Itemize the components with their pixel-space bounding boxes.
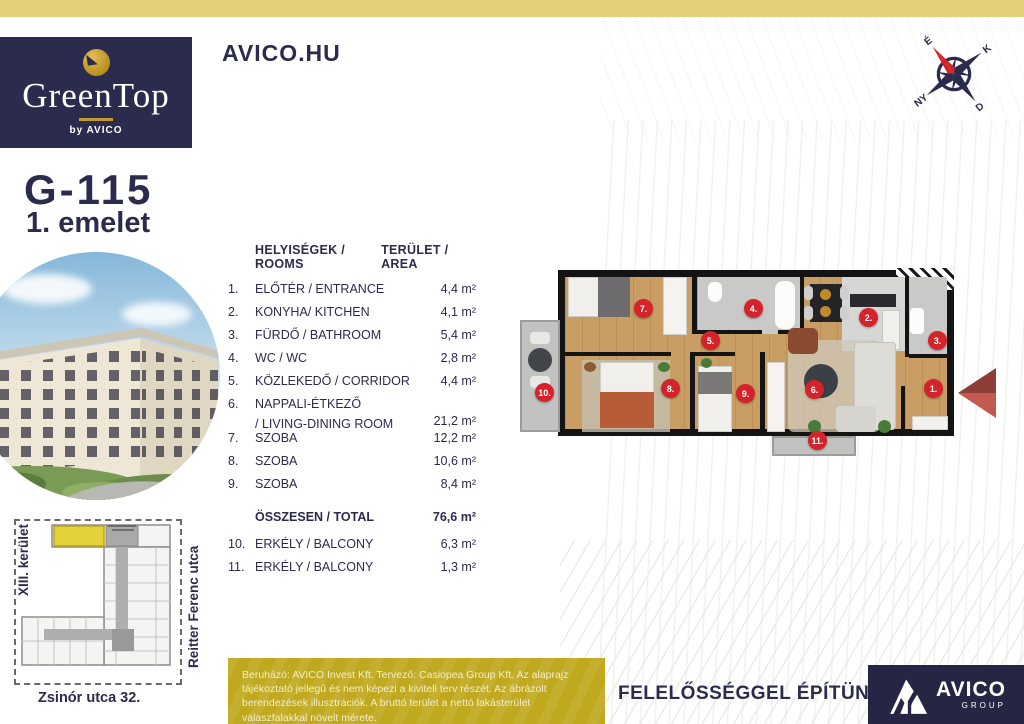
room-row: 5.KÖZLEKEDŐ / CORRIDOR4,4 m² bbox=[228, 374, 476, 397]
room-number: 9. bbox=[228, 477, 255, 491]
room-row: 7.SZOBA12,2 m² bbox=[228, 431, 476, 454]
district-label: XIII. kerület bbox=[16, 524, 31, 596]
sink bbox=[910, 308, 924, 334]
room-area: 4,4 m² bbox=[441, 282, 476, 296]
room-area: 12,2 m² bbox=[434, 431, 476, 445]
room-row: 4.WC / WC2,8 m² bbox=[228, 351, 476, 374]
chair bbox=[840, 286, 849, 300]
room-number: 1. bbox=[228, 282, 255, 296]
balcony-rows: 10.ERKÉLY / BALCONY6,3 m²11.ERKÉLY / BAL… bbox=[228, 537, 476, 583]
rooms-rows: 1.ELŐTÉR / ENTRANCE4,4 m²2.KONYHA/ KITCH… bbox=[228, 282, 476, 500]
wall bbox=[565, 352, 671, 356]
entry-cabinet bbox=[912, 416, 948, 430]
wall bbox=[800, 277, 804, 334]
wall bbox=[695, 352, 735, 356]
wardrobe bbox=[663, 277, 687, 335]
total-label: ÖSSZESEN / TOTAL bbox=[255, 510, 374, 524]
room-marker-7: 7. bbox=[634, 299, 653, 318]
room-name: WC / WC bbox=[255, 351, 441, 365]
room-row: 10.ERKÉLY / BALCONY6,3 m² bbox=[228, 537, 476, 560]
address-label: Zsinór utca 32. bbox=[38, 690, 140, 706]
pendant-lamp bbox=[820, 289, 831, 300]
room-marker-11: 11. bbox=[808, 431, 827, 450]
room-area: 4,4 m² bbox=[441, 374, 476, 388]
unit-floor: 1. emelet bbox=[26, 207, 150, 240]
wardrobe bbox=[767, 362, 785, 432]
chair bbox=[804, 286, 813, 300]
room-row: 6.NAPPALI-ÉTKEZŐ/ LIVING-DINING ROOM21,2… bbox=[228, 397, 476, 431]
wall bbox=[690, 352, 695, 436]
wall bbox=[760, 352, 765, 436]
room-number: 2. bbox=[228, 305, 255, 319]
room-row: 2.KONYHA/ KITCHEN4,1 m² bbox=[228, 305, 476, 328]
room-row: 9.SZOBA8,4 m² bbox=[228, 477, 476, 500]
nightstand bbox=[584, 362, 596, 372]
room-name: ELŐTÉR / ENTRANCE bbox=[255, 282, 441, 296]
slogan: FELELŐSSÉGGEL ÉPÍTÜNK bbox=[618, 683, 858, 705]
brand-name: GreenTop bbox=[22, 78, 169, 113]
room-area: 2,8 m² bbox=[441, 351, 476, 365]
room-row: 8.SZOBA10,6 m² bbox=[228, 454, 476, 477]
room-marker-4: 4. bbox=[744, 299, 763, 318]
brand-gold-rule bbox=[79, 118, 113, 121]
terrace-chair bbox=[530, 332, 550, 344]
room-row: 3.FÜRDŐ / BATHROOM5,4 m² bbox=[228, 328, 476, 351]
wall bbox=[909, 354, 954, 358]
pendant-lamp bbox=[820, 306, 831, 317]
bathtub bbox=[774, 280, 796, 330]
brand-byline: by AVICO bbox=[69, 125, 122, 136]
room-number: 6. bbox=[228, 397, 255, 411]
total-value: 76,6 m² bbox=[433, 510, 476, 524]
avico-hu-link[interactable]: AVICO.HU bbox=[222, 40, 341, 67]
plant bbox=[658, 362, 670, 372]
avico-group-logo: AVICO GROUP bbox=[868, 665, 1024, 724]
room-marker-9: 9. bbox=[736, 384, 755, 403]
room-name: NAPPALI-ÉTKEZŐ/ LIVING-DINING ROOM bbox=[255, 397, 434, 431]
compass-icon: É K D NY bbox=[908, 28, 1000, 120]
room-marker-10: 10. bbox=[535, 383, 554, 402]
avico-mountain-icon bbox=[886, 676, 928, 714]
room-area: 10,6 m² bbox=[434, 454, 476, 468]
bed-room8-blanket bbox=[600, 392, 654, 428]
kitchen-counter bbox=[850, 294, 896, 307]
wall bbox=[901, 386, 905, 436]
room-area: 6,3 m² bbox=[441, 537, 476, 551]
room-number: 8. bbox=[228, 454, 255, 468]
room-marker-5: 5. bbox=[701, 331, 720, 350]
rooms-table: HELYISÉGEK / ROOMS TERÜLET / AREA 1.ELŐT… bbox=[228, 243, 476, 583]
room-row: 11.ERKÉLY / BALCONY1,3 m² bbox=[228, 560, 476, 583]
terrace-table bbox=[528, 348, 552, 372]
sofa-chaise bbox=[836, 406, 876, 432]
room-marker-3: 3. bbox=[928, 331, 947, 350]
bed-room9-blanket bbox=[698, 372, 732, 394]
bed-room7-blanket bbox=[598, 277, 630, 317]
room-name: KONYHA/ KITCHEN bbox=[255, 305, 441, 319]
room-area: 8,4 m² bbox=[441, 477, 476, 491]
room-number: 10. bbox=[228, 537, 255, 551]
column-header-rooms: HELYISÉGEK / ROOMS bbox=[255, 243, 381, 271]
room-name: ERKÉLY / BALCONY bbox=[255, 537, 441, 551]
room-area: 5,4 m² bbox=[441, 328, 476, 342]
room-name: SZOBA bbox=[255, 431, 434, 445]
site-plan bbox=[14, 519, 182, 685]
room-area: 1,3 m² bbox=[441, 560, 476, 574]
building-photo bbox=[0, 252, 220, 500]
room-name: SZOBA bbox=[255, 454, 434, 468]
compass-north-label: É bbox=[921, 33, 935, 48]
room-name: FÜRDŐ / BATHROOM bbox=[255, 328, 441, 342]
top-gold-band bbox=[0, 0, 1024, 17]
column-header-area: TERÜLET / AREA bbox=[381, 243, 476, 271]
group-sub: GROUP bbox=[936, 701, 1006, 710]
room-number: 3. bbox=[228, 328, 255, 342]
floor-plan: 7.4.2.5.3.10.8.9.6.1.11. bbox=[520, 268, 1000, 460]
compass-east-label: K bbox=[981, 42, 994, 56]
room-area: 21,2 m² bbox=[434, 414, 476, 428]
greentop-logo: GreenTop by AVICO bbox=[0, 37, 192, 148]
armchair bbox=[788, 328, 818, 354]
wall bbox=[905, 277, 909, 357]
compass-west-label: NY bbox=[912, 92, 930, 109]
compass-south-label: D bbox=[974, 101, 987, 114]
flyer-page: GreenTop by AVICO AVICO.HU É K D NY bbox=[0, 0, 1024, 724]
group-name: AVICO bbox=[936, 679, 1006, 700]
room-marker-6: 6. bbox=[805, 380, 824, 399]
greentop-clock-icon bbox=[83, 49, 110, 76]
room-row: 1.ELŐTÉR / ENTRANCE4,4 m² bbox=[228, 282, 476, 305]
disclaimer-text: Beruházó: AVICO Invest Kft. Tervező: Cas… bbox=[242, 669, 568, 724]
room-area: 4,1 m² bbox=[441, 305, 476, 319]
street-label: Reitter Ferenc utca bbox=[186, 546, 201, 668]
room-marker-1: 1. bbox=[924, 379, 943, 398]
room-number: 4. bbox=[228, 351, 255, 365]
entrance-arrow bbox=[956, 368, 996, 418]
room-number: 11. bbox=[228, 560, 255, 574]
wall bbox=[692, 277, 697, 334]
chair bbox=[804, 306, 813, 320]
room-name: ERKÉLY / BALCONY bbox=[255, 560, 441, 574]
room-marker-8: 8. bbox=[661, 379, 680, 398]
plant bbox=[878, 420, 891, 433]
room-number: 5. bbox=[228, 374, 255, 388]
plant bbox=[701, 358, 712, 368]
room-name: SZOBA bbox=[255, 477, 441, 491]
room-name: KÖZLEKEDŐ / CORRIDOR bbox=[255, 374, 441, 388]
toilet bbox=[708, 282, 722, 302]
room-marker-2: 2. bbox=[859, 308, 878, 327]
disclaimer-box: Beruházó: AVICO Invest Kft. Tervező: Cas… bbox=[228, 658, 605, 724]
chair bbox=[840, 306, 849, 320]
room-number: 7. bbox=[228, 431, 255, 445]
